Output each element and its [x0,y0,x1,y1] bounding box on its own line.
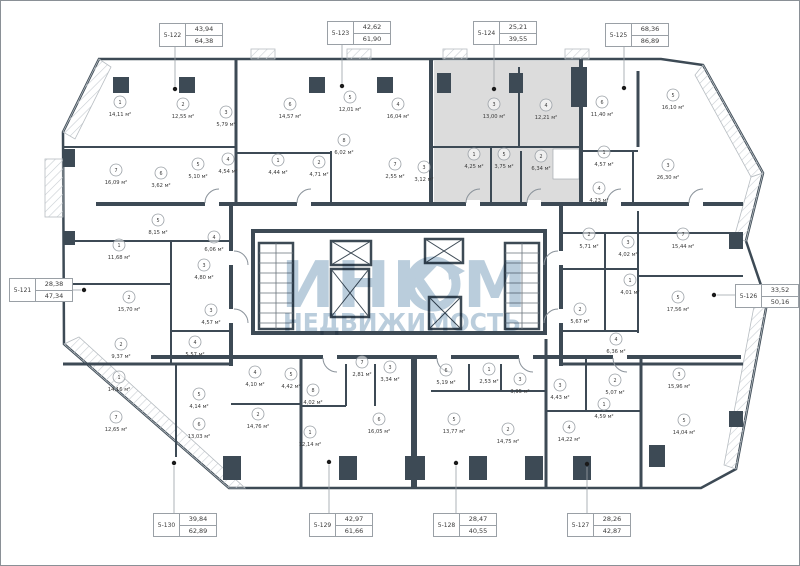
unit-leader-dot [82,288,86,292]
room-number: 4 [396,102,399,108]
room-area: 3,12 м² [414,177,433,183]
room-number: 1 [602,402,605,408]
room-area: 4,02 м² [618,252,637,258]
room-number: 6 [600,100,603,106]
room-area: 4,43 м² [550,395,569,401]
room-number: 2 [256,412,259,418]
room-number: 7 [393,162,396,168]
room-number: 8 [311,388,314,394]
room-area: 16,04 м² [387,114,410,120]
room-area: 16,05 м² [368,429,391,435]
room-number: 8 [342,138,345,144]
room-number: 5 [671,93,674,99]
room-number: 4 [614,337,617,343]
room-area: 13,77 м² [443,429,466,435]
room-number: 7 [360,360,363,366]
unit-leader-dot [712,293,716,297]
room-area: 5,57 м² [185,352,204,358]
unit-leader-dot [340,84,344,88]
room-number: 1 [628,278,631,284]
room-area: 4,25 м² [464,164,483,170]
room-area: 4,23 м² [589,198,608,204]
room-area: 4,01 м² [620,290,639,296]
room-area: 4,44 м² [268,170,287,176]
room-number: 4 [597,186,600,192]
room-area: 4,10 м² [245,382,264,388]
room-area: 5,10 м² [188,174,207,180]
room-area: 12,21 м² [535,115,558,121]
room-area: 16,10 м² [662,105,685,111]
room-area: 3,62 м² [151,183,170,189]
room-area: 14,04 м² [673,430,696,436]
room-number: 3 [666,163,669,169]
room-number: 2 [119,342,122,348]
room-number: 2 [613,378,616,384]
room-area: 8,15 м² [148,230,167,236]
room-area: 2,55 м² [385,174,404,180]
room-number: 3 [388,365,391,371]
room-number: 4 [544,103,547,109]
room-area: 4,57 м² [594,162,613,168]
room-number: 3 [224,110,227,116]
room-number: 7 [681,232,684,238]
floor-plan-svg: ИНК М НЕДВИЖИМОСТЬ 114,11 м²212,55 м²35,… [1,1,800,566]
room-area: 13,03 м² [188,434,211,440]
room-area: 14,22 м² [558,437,581,443]
room-number: 6 [159,171,162,177]
unit-leader-dot [454,461,458,465]
room-number: 5 [156,218,159,224]
room-number: 7 [114,415,117,421]
room-number: 1 [118,100,121,106]
room-area: 12,01 м² [339,107,362,113]
room-number: 3 [209,308,212,314]
room-area: 14,16 м² [108,387,131,393]
room-area: 11,40 м² [591,112,614,118]
room-area: 12,55 м² [172,114,195,120]
room-area: 5,07 м² [605,390,624,396]
room-area: 13,00 м² [483,114,506,120]
room-number: 6 [288,102,291,108]
room-area: 14,76 м² [247,424,270,430]
room-area: 12,65 м² [105,427,128,433]
room-number: 4 [253,370,256,376]
room-number: 1 [117,375,120,381]
room-number: 2 [506,427,509,433]
room-area: 15,96 м² [668,384,691,390]
room-number: 5 [676,295,679,301]
unit-leader-dot [585,462,589,466]
room-number: 4 [567,425,570,431]
room-number: 5 [196,162,199,168]
room-area: 3,95 м² [510,389,529,395]
room-number: 3 [518,377,521,383]
room-number: 1 [602,150,605,156]
room-number: 3 [677,372,680,378]
unit-leader-dot [172,461,176,465]
room-area: 6,02 м² [334,150,353,156]
highlighted-unit [434,61,579,204]
room-number: 6 [197,422,200,428]
room-number: 5 [289,372,292,378]
room-area: 6,36 м² [606,349,625,355]
room-area: 15,44 м² [672,244,695,250]
room-number: 3 [626,240,629,246]
room-area: 17,56 м² [667,307,690,313]
room-area: 5,67 м² [570,319,589,325]
room-number: 2 [181,102,184,108]
unit-leader-dot [492,87,496,91]
room-number: 5 [348,95,351,101]
room-label: 712,65 м² [105,411,128,433]
room-area: 4,14 м² [189,404,208,410]
room-number: 1 [117,243,120,249]
room-area: 4,57 м² [201,320,220,326]
room-number: 4 [226,157,229,163]
room-area: 4,80 м² [194,275,213,281]
unit-leader-dot [327,460,331,464]
room-area: 5,79 м² [216,122,235,128]
unit-leader-dot [622,86,626,90]
room-number: 3 [558,383,561,389]
room-area: 4,59 м² [594,414,613,420]
watermark-subtitle: НЕДВИЖИМОСТЬ [283,308,521,337]
room-number: 3 [422,165,425,171]
room-number: 3 [492,102,495,108]
room-area: 26,30 м² [657,175,680,181]
room-number: 2 [317,160,320,166]
room-number: 6 [377,417,380,423]
room-area: 5,71 м² [579,244,598,250]
unit-leader-dot [173,87,177,91]
room-number: 1 [487,367,490,373]
floor-plan-image: ИНК М НЕДВИЖИМОСТЬ 114,11 м²212,55 м²35,… [0,0,800,566]
watermark: ИНК М НЕДВИЖИМОСТЬ [281,249,529,337]
room-number: 7 [114,168,117,174]
room-area: 14,11 м² [109,112,132,118]
room-number: 5 [452,417,455,423]
room-number: 5 [502,152,505,158]
room-number: 2 [578,307,581,313]
room-area: 6,34 м² [531,166,550,172]
room-number: 5 [197,392,200,398]
room-number: 1 [308,430,311,436]
room-area: 3,34 м² [380,377,399,383]
room-number: 1 [472,152,475,158]
room-area: 3,75 м² [494,164,513,170]
room-area: 14,57 м² [279,114,302,120]
room-area: 4,42 м² [281,384,300,390]
room-area: 2,81 м² [352,372,371,378]
room-area: 12,14 м² [299,442,322,448]
room-area: 14,75 м² [497,439,520,445]
room-area: 11,68 м² [108,255,131,261]
room-area: 4,71 м² [309,172,328,178]
room-number: 4 [212,235,215,241]
room-area: 2,53 м² [479,379,498,385]
room-area: 4,54 м² [218,169,237,175]
room-area: 5,19 м² [436,380,455,386]
room-number: 3 [202,263,205,269]
room-area: 15,70 м² [118,307,141,313]
room-area: 6,06 м² [204,247,223,253]
room-number: 4 [193,340,196,346]
room-area: 4,02 м² [303,400,322,406]
room-area: 16,09 м² [105,180,128,186]
room-number: 2 [539,154,542,160]
room-number: 1 [276,158,279,164]
room-number: 6 [444,368,447,374]
room-number: 2 [587,232,590,238]
room-number: 2 [127,295,130,301]
room-area: 9,37 м² [111,354,130,360]
room-number: 5 [682,418,685,424]
